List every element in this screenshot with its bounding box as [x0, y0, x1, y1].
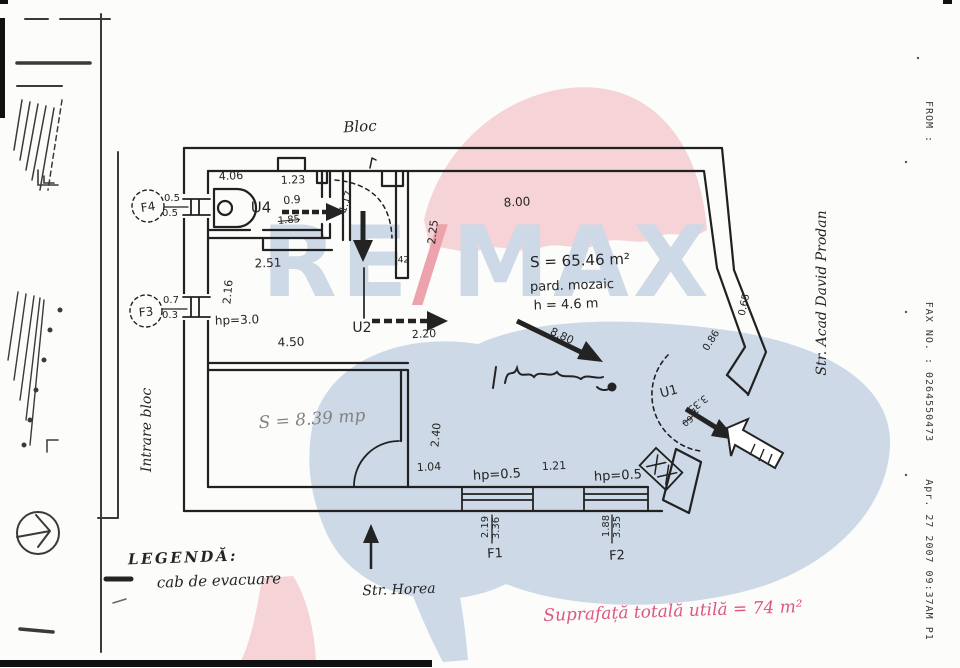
fax-timestamp: Apr. 27 2007 09:37AM P1: [923, 479, 933, 640]
legend-title: LEGENDĂ:: [128, 549, 239, 568]
dim-f2-width: 1.88: [602, 515, 612, 537]
dim-f3-bottom: 0.3: [162, 311, 178, 321]
dim-hp-3: hp=3.0: [215, 313, 260, 327]
dim-1-17: 1.17: [339, 190, 355, 214]
dim-4-06: 4.06: [218, 170, 243, 182]
dim-1-85: 1.85: [277, 215, 300, 227]
dim-2-51: 2.51: [254, 257, 281, 270]
dim-f4-top: 0.5: [164, 194, 180, 204]
fax-scan-page: RE/MAX: [0, 0, 960, 668]
street-bottom-label: Str. Horea: [362, 582, 436, 599]
dim-0-65: 0.65: [738, 293, 752, 317]
door-u4-label: U4: [251, 201, 272, 216]
dim-4-50: 4.50: [277, 336, 304, 349]
dim-2-25: 2.25: [426, 219, 440, 245]
dim-2-16: 2.16: [221, 279, 234, 304]
dim-f2-height: 3.35: [613, 516, 623, 538]
window-f4-label: F4: [140, 200, 156, 214]
street-right-label: Str. Acad David Prodan: [815, 210, 829, 375]
dim-2-20: 2.20: [411, 328, 436, 340]
main-room-area: S = 65.46 m²: [530, 252, 630, 270]
window-f2-label: F2: [609, 549, 625, 563]
fax-from: FROM :: [923, 101, 933, 143]
dim-0-86: 0.86: [702, 329, 722, 353]
dim-2-40: 2.40: [429, 422, 442, 447]
dim-1-21: 1.21: [541, 460, 566, 472]
block-label: Bloc: [343, 119, 377, 136]
window-f1-label: F1: [487, 547, 503, 561]
dim-hp-05-right: hp=0.5: [594, 468, 643, 483]
small-room-area: S = 8.39 mp: [258, 408, 366, 432]
dim-1-60-u1: 1.60: [679, 407, 700, 426]
main-room-floor: pard. mozaic: [530, 278, 614, 294]
plan-labels-layer: BlocIntrare blocStr. Acad David ProdanSt…: [0, 0, 960, 668]
total-area-note: Suprafață totală utilă = 74 m²: [543, 599, 803, 625]
dim-1-04: 1.04: [416, 461, 441, 473]
dim-0-42: .42: [395, 257, 409, 266]
legend-item-evacuation: cab de evacuare: [157, 571, 282, 590]
dim-1-23: 1.23: [281, 174, 306, 186]
dim-f4-bottom: 0.5: [162, 209, 178, 219]
door-u2-label: U2: [352, 321, 371, 335]
dim-8-00: 8.00: [503, 195, 530, 208]
window-f3-label: F3: [138, 305, 154, 318]
dim-f1-height: 3.36: [492, 517, 502, 539]
dim-hp-05-left: hp=0.5: [473, 467, 522, 482]
dim-8-80: 8.80: [549, 326, 576, 346]
dim-f1-width: 2.19: [481, 516, 491, 538]
dim-0-9: 0.9: [283, 194, 301, 206]
door-u1-label: U1: [659, 383, 680, 400]
fax-number: FAX NO. : 0264550473: [923, 302, 933, 442]
entrance-label: Intrare bloc: [140, 388, 154, 472]
main-room-height: h = 4.6 m: [533, 297, 598, 312]
dim-f3-top: 0.7: [163, 296, 179, 306]
